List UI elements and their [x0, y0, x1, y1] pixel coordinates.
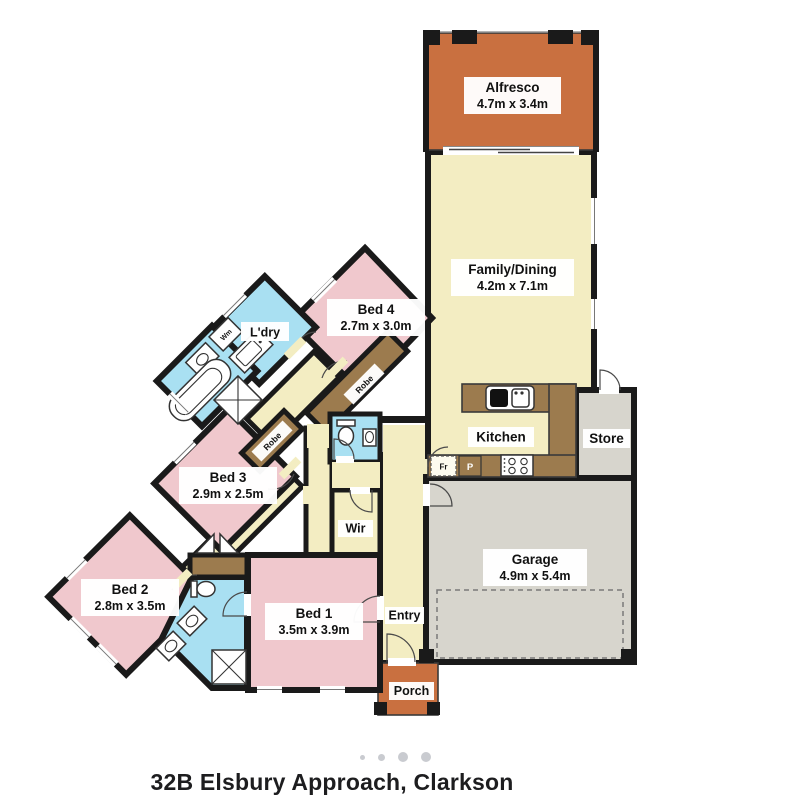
ensuite-shower-fixture: [212, 650, 246, 684]
svg-text:4.7m x 3.4m: 4.7m x 3.4m: [477, 97, 548, 111]
svg-text:Family/Dining: Family/Dining: [468, 262, 557, 277]
carousel-dot[interactable]: [398, 752, 408, 762]
sliding-door: [443, 146, 579, 155]
opening: [307, 424, 329, 448]
svg-text:Entry: Entry: [389, 609, 421, 623]
garage-corner-pier: [419, 649, 434, 663]
wir-label: Wir: [338, 520, 373, 537]
svg-text:Garage: Garage: [512, 552, 559, 567]
laundry-label: L'dry: [241, 322, 289, 341]
svg-text:Wir: Wir: [345, 522, 365, 536]
alfresco-label: Alfresco 4.7m x 3.4m: [464, 77, 561, 114]
alfresco-pillar: [581, 30, 597, 45]
floorplan-image[interactable]: Fr P Wm: [0, 0, 800, 745]
carousel-dot[interactable]: [421, 752, 431, 762]
pantry-label: P: [467, 462, 474, 473]
hall-pocket: [383, 425, 425, 459]
svg-text:2.8m x 3.5m: 2.8m x 3.5m: [95, 599, 166, 613]
floorplan-svg: Fr P Wm: [0, 0, 800, 745]
bed3-label: Bed 3 2.9m x 2.5m: [179, 467, 277, 504]
garage-corner-pier: [621, 649, 636, 663]
entry-label: Entry: [385, 607, 424, 624]
svg-text:3.5m x 3.9m: 3.5m x 3.9m: [279, 623, 350, 637]
wc-basin-fixture: [363, 429, 376, 446]
alfresco-pillar: [548, 30, 573, 44]
svg-text:L'dry: L'dry: [250, 326, 280, 340]
opening: [303, 486, 321, 504]
svg-text:Bed 2: Bed 2: [112, 582, 149, 597]
room-entry: [380, 455, 426, 663]
alfresco-side-wall-left: [423, 30, 429, 152]
fridge-label: Fr: [440, 463, 448, 472]
svg-text:Bed 1: Bed 1: [296, 606, 333, 621]
svg-text:Alfresco: Alfresco: [485, 80, 539, 95]
bed4-label: Bed 4 2.7m x 3.0m: [327, 299, 425, 336]
kitchen-sink-fixture: [486, 386, 534, 410]
wc-toilet-fixture: [337, 420, 355, 445]
opening: [332, 462, 380, 488]
bed1-label: Bed 1 3.5m x 3.9m: [265, 603, 363, 640]
kitchen-label: Kitchen: [468, 427, 534, 447]
alfresco-pillar: [424, 30, 440, 45]
carousel-dots: [360, 750, 460, 764]
cooktop-fixture: [501, 455, 533, 476]
family-dining-label: Family/Dining 4.2m x 7.1m: [451, 259, 574, 296]
carousel-dot[interactable]: [378, 754, 385, 761]
svg-text:Bed 3: Bed 3: [210, 470, 247, 485]
svg-text:Kitchen: Kitchen: [476, 430, 526, 445]
svg-text:Store: Store: [589, 431, 624, 446]
ensuite-toilet-fixture: [191, 581, 215, 597]
svg-text:4.9m x 5.4m: 4.9m x 5.4m: [500, 569, 571, 583]
alfresco-side-wall-right: [593, 30, 599, 152]
porch-label: Porch: [389, 682, 434, 700]
robe-bed1: [190, 555, 247, 577]
svg-text:Bed 4: Bed 4: [358, 302, 395, 317]
svg-text:2.7m x 3.0m: 2.7m x 3.0m: [341, 319, 412, 333]
bed2-label: Bed 2 2.8m x 3.5m: [81, 579, 179, 616]
porch-pillar: [427, 702, 440, 715]
porch-pillar: [374, 702, 387, 715]
svg-text:2.9m x 2.5m: 2.9m x 2.5m: [193, 487, 264, 501]
svg-text:Porch: Porch: [394, 684, 429, 698]
carousel-dot[interactable]: [360, 755, 365, 760]
alfresco-pillar: [452, 30, 477, 44]
svg-text:4.2m x 7.1m: 4.2m x 7.1m: [477, 279, 548, 293]
fridge-fixture: Fr: [431, 456, 456, 476]
pocket-top-wall: [378, 416, 428, 423]
listing-address: 32B Elsbury Approach, Clarkson: [0, 769, 664, 796]
store-label: Store: [583, 429, 630, 448]
pantry-fixture: P: [459, 456, 481, 476]
garage-label: Garage 4.9m x 5.4m: [483, 549, 587, 586]
